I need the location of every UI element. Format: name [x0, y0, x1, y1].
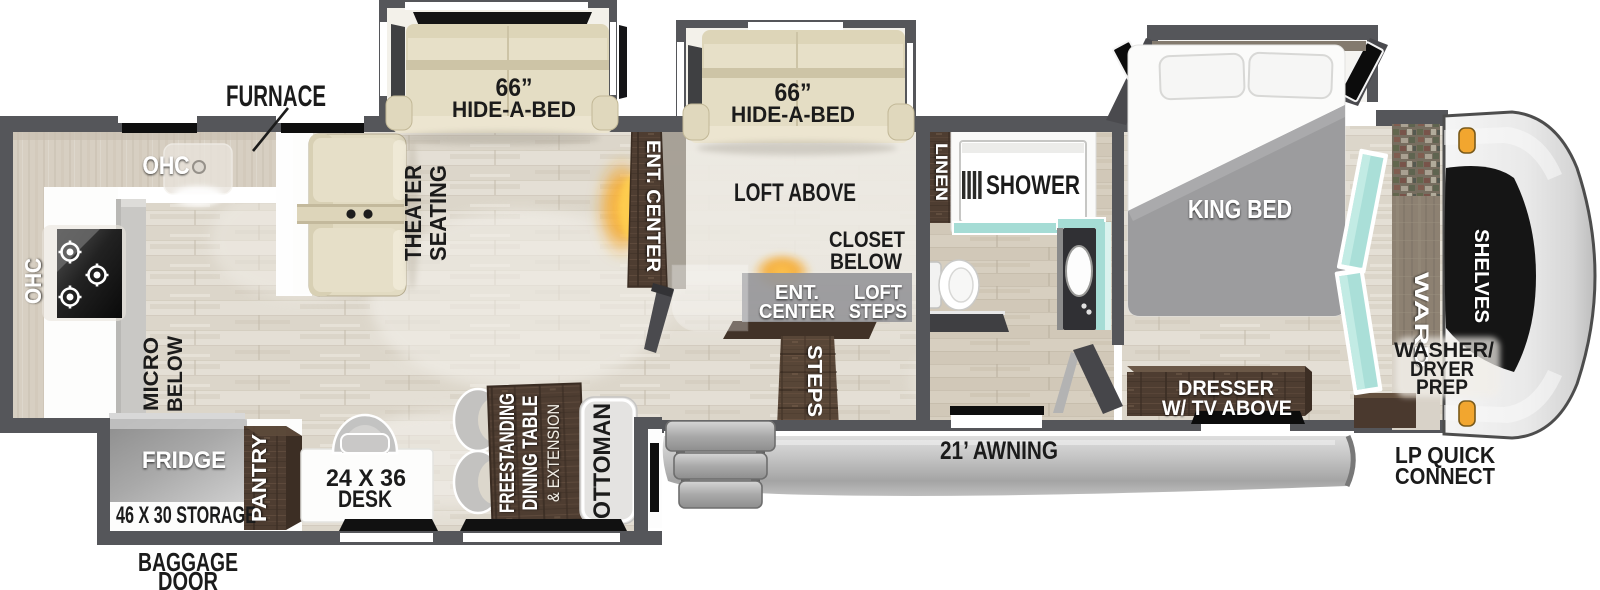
svg-text:SHELVES: SHELVES: [1470, 229, 1492, 323]
svg-text:BELOW: BELOW: [830, 249, 902, 274]
svg-text:CENTER: CENTER: [759, 301, 836, 323]
svg-text:CONNECT: CONNECT: [1395, 463, 1495, 489]
svg-text:SEATING: SEATING: [425, 165, 451, 261]
svg-text:DOOR: DOOR: [158, 566, 218, 590]
svg-text:OTTOMAN: OTTOMAN: [589, 403, 616, 519]
svg-text:STEPS: STEPS: [803, 345, 825, 417]
svg-text:OHC: OHC: [143, 152, 190, 180]
svg-text:STEPS: STEPS: [849, 301, 907, 323]
svg-text:FRIDGE: FRIDGE: [142, 447, 226, 474]
svg-text:HIDE-A-BED: HIDE-A-BED: [731, 102, 855, 127]
svg-text:THEATER: THEATER: [400, 165, 426, 261]
svg-text:ENT. CENTER: ENT. CENTER: [642, 140, 663, 272]
svg-text:DESK: DESK: [338, 486, 393, 513]
svg-text:HIDE-A-BED: HIDE-A-BED: [452, 97, 576, 122]
svg-text:SHOWER: SHOWER: [986, 170, 1080, 200]
svg-text:OHC: OHC: [20, 258, 46, 304]
svg-text:KING BED: KING BED: [1188, 194, 1292, 224]
svg-text:MICRO: MICRO: [140, 337, 163, 411]
svg-text:DINING TABLE: DINING TABLE: [519, 396, 542, 511]
svg-text:LINEN: LINEN: [932, 143, 951, 201]
svg-text:21’ AWNING: 21’ AWNING: [940, 437, 1058, 465]
svg-text:LOFT ABOVE: LOFT ABOVE: [734, 179, 856, 207]
svg-text:BELOW: BELOW: [164, 336, 187, 412]
svg-text:PANTRY: PANTRY: [249, 433, 271, 522]
svg-text:& EXTENSION: & EXTENSION: [544, 404, 563, 502]
svg-text:46 X 30 STORAGE: 46 X 30 STORAGE: [116, 502, 256, 529]
svg-text:PREP: PREP: [1416, 376, 1468, 399]
svg-text:FURNACE: FURNACE: [226, 80, 326, 113]
svg-text:FREESTANDING: FREESTANDING: [496, 393, 519, 513]
svg-text:W/ TV ABOVE: W/ TV ABOVE: [1162, 397, 1292, 420]
